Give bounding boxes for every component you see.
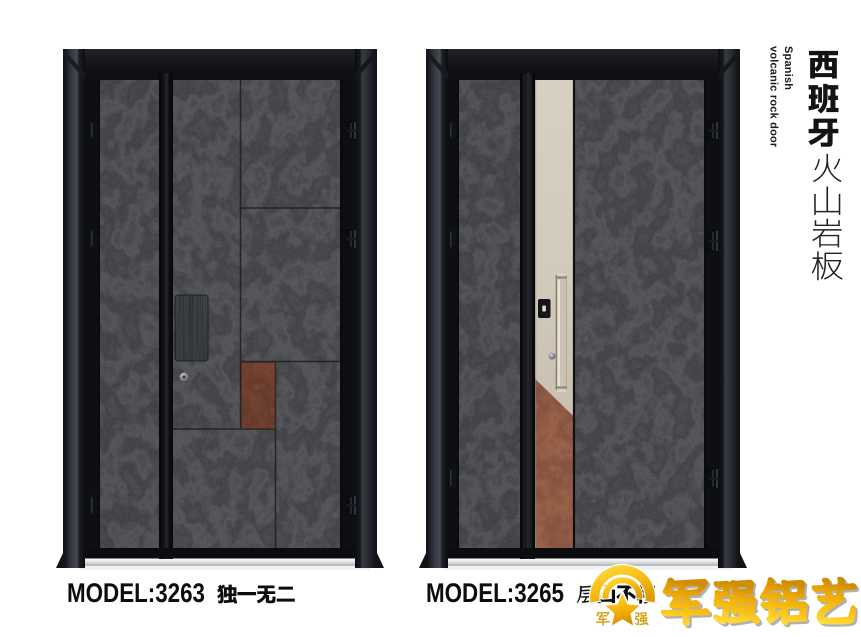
svg-text:MODEL:3265: MODEL:3265	[426, 578, 564, 608]
svg-text:Spanishvolcanic rock door: Spanishvolcanic rock door	[768, 46, 795, 148]
svg-text:MODEL:3263: MODEL:3263	[67, 578, 205, 608]
